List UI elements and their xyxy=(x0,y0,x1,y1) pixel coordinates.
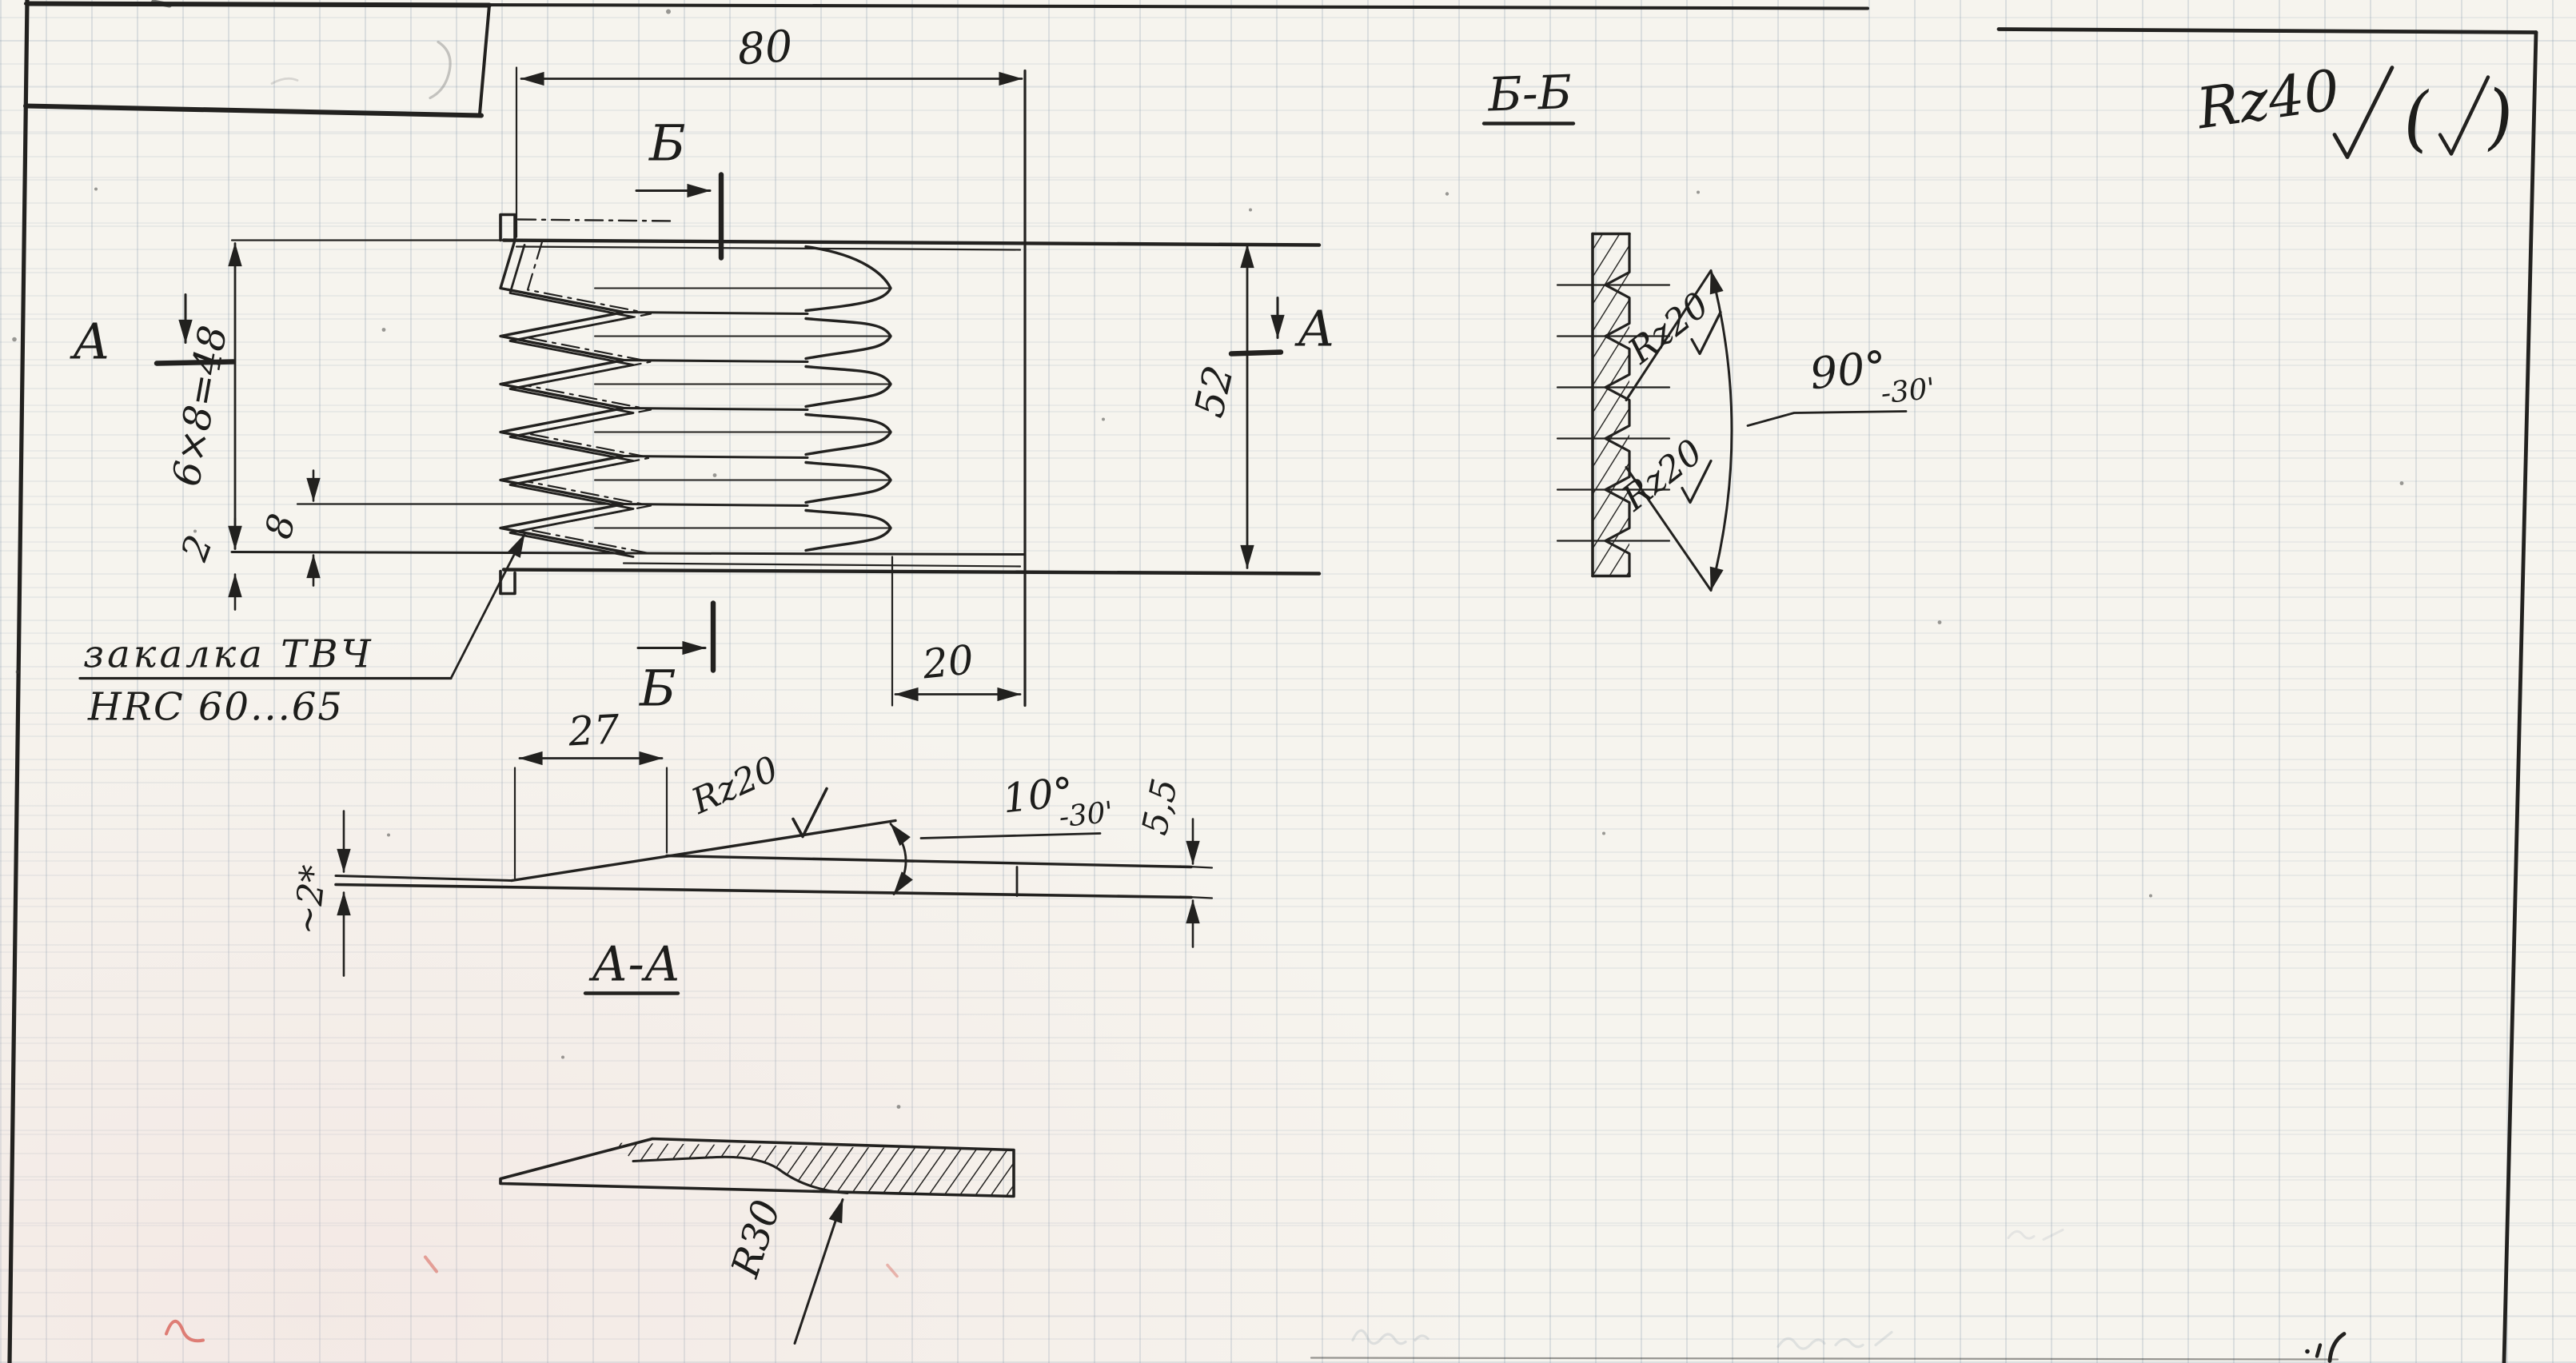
ghost-writing xyxy=(1778,1333,1892,1349)
dim-angle-tol-bb: -30' xyxy=(1880,373,1937,411)
scan-artifacts xyxy=(12,10,2403,1361)
drawing-canvas: 80 52 6×8=48 8 2 20 A A Б Б xyxy=(0,0,2576,1363)
cut-label-b-bottom: Б xyxy=(639,660,676,718)
red-pen-mark xyxy=(887,1265,897,1277)
dim-52: 52 xyxy=(1186,361,1242,421)
hardening-text-line2: HRC 60...65 xyxy=(87,685,344,730)
cut-label-b-top: Б xyxy=(648,114,686,173)
pen-mark-bottom-right xyxy=(2305,1334,2344,1361)
check-icon xyxy=(2440,78,2488,154)
r30-leader xyxy=(795,1200,843,1344)
section-bb-title: Б-Б xyxy=(1486,65,1573,122)
red-pen-mark xyxy=(166,1321,203,1341)
paren-close: ) xyxy=(2481,74,2517,158)
paren-open: ( xyxy=(2399,77,2435,161)
title-block-stub xyxy=(26,2,489,116)
ghost-writing xyxy=(2008,1230,2063,1240)
main-view-dimensions: 80 52 6×8=48 8 2 20 xyxy=(164,21,1247,706)
check-icon xyxy=(2335,68,2392,157)
tab-bottom xyxy=(500,572,515,594)
main-view xyxy=(232,71,1319,706)
tab-top xyxy=(500,215,515,241)
dim-2: 2 xyxy=(172,529,221,567)
tooth-tips xyxy=(806,247,891,551)
roughness-bb-upper: Rz20 xyxy=(1621,285,1717,373)
hardening-text-line1: закалка ТВЧ xyxy=(83,632,374,677)
tooth-boundaries xyxy=(232,313,1025,555)
dim-radius: R30 xyxy=(723,1194,790,1283)
cut-label-a-left: A xyxy=(70,313,110,371)
general-roughness-note: Rz40 ( ) xyxy=(2191,57,2517,161)
ghost-writing xyxy=(1353,1330,1428,1343)
cut-label-a-right: A xyxy=(1294,300,1334,358)
dim-angle-tol-aa: -30' xyxy=(1058,796,1115,835)
drawing-sheet: 80 52 6×8=48 8 2 20 A A Б Б xyxy=(0,0,2576,1363)
dim-20: 20 xyxy=(919,636,975,687)
hardening-leader-arrow xyxy=(451,535,524,679)
hardening-note: закалка ТВЧ HRC 60...65 xyxy=(80,535,524,730)
check-icon xyxy=(793,789,827,837)
cut-marks: A A Б Б xyxy=(70,114,1334,718)
dim-27: 27 xyxy=(567,706,621,755)
dim-thickness: 5,5 xyxy=(1134,775,1186,839)
dim-80: 80 xyxy=(736,21,795,75)
dim-edge-thickness: ~2* xyxy=(286,863,334,937)
roughness-general: Rz40 xyxy=(2191,57,2343,141)
section-aa-sketch: 27 Rz20 10° -30' 5,5 ~2* А-А xyxy=(286,706,1212,993)
dim-serration: 6×8=48 xyxy=(164,322,236,489)
section-aa-title: А-А xyxy=(588,937,680,993)
dim-angle-bb: 90° xyxy=(1808,341,1889,400)
dim-8: 8 xyxy=(256,509,304,543)
pencil-squiggle xyxy=(430,42,450,98)
sheet-frame xyxy=(10,1,2536,1363)
roughness-aa: Rz20 xyxy=(685,748,784,823)
red-pen-mark xyxy=(425,1257,437,1272)
section-bb: Б-Б Rz20 Rz20 90° -30' xyxy=(1484,65,1936,591)
section-aa-cut-view: R30 xyxy=(500,1139,1014,1344)
